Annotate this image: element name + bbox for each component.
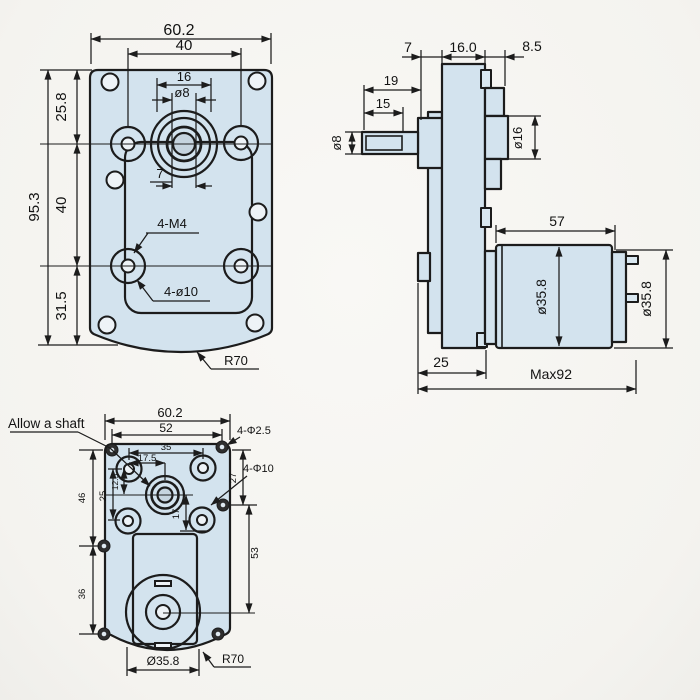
dim-side-motor-length: 57 [549, 213, 565, 229]
dim-side-shaft-length: 19 [384, 73, 398, 88]
dim-side-plate-thickness: 16.0 [449, 39, 476, 55]
back-motor-slot [155, 643, 171, 648]
side-clip-tab [481, 208, 491, 227]
note-allow-a-shaft: Allow a shaft [8, 416, 85, 431]
dim-back-center-down: 17 [171, 509, 182, 520]
dim-back-right-top: 27 [228, 473, 239, 484]
back-motor-slot [155, 581, 171, 586]
front-view: 60.2 40 16 ø8 7 95.3 25.8 40 31.5 4-M4 [26, 22, 272, 369]
front-corner-hole [102, 74, 119, 91]
front-edge-hole [107, 172, 124, 189]
side-motor-terminal [626, 294, 638, 302]
dim-front-key-width: 7 [156, 166, 163, 181]
dim-front-top-offset: 25.8 [53, 92, 70, 121]
dim-back-left-top: 46 [77, 493, 88, 504]
side-lower-boss [418, 253, 430, 281]
side-main-plate [442, 64, 485, 348]
dim-back-corner-radius: R70 [222, 652, 244, 666]
dim-front-boss-width: 16 [177, 69, 191, 84]
dim-front-hole-spacing-v: 40 [53, 197, 70, 214]
callout-back-holes: 4-Φ10 [243, 463, 274, 475]
side-motor-end-cap [612, 252, 626, 342]
dim-front-hole-spacing-h: 40 [176, 37, 193, 54]
front-edge-hole [250, 204, 267, 221]
side-bearing-boss [418, 118, 442, 168]
dim-back-motor-dia: Ø35.8 [147, 654, 180, 668]
front-corner-hole [247, 315, 264, 332]
side-view: 7 16.0 8.5 19 15 ø8 ø16 57 ø35.8 ø [329, 38, 673, 394]
dim-side-boss-dia: ø16 [510, 127, 525, 149]
dim-front-overall-height: 95.3 [26, 192, 43, 221]
side-motor-terminal [626, 256, 638, 264]
dim-side-motor-rear-dia: ø35.8 [638, 281, 654, 317]
drawing-canvas: 60.2 40 16 ø8 7 95.3 25.8 40 31.5 4-M4 [0, 0, 700, 700]
side-boss-step1 [485, 88, 504, 116]
callout-front-thread: 4-M4 [157, 216, 187, 231]
dim-back-hole-spacing-h: 35 [161, 442, 172, 453]
front-corner-hole [99, 317, 116, 334]
back-motor-center-hole [156, 605, 170, 619]
dim-side-shaft-dia: ø8 [329, 135, 344, 150]
side-motor-adapter [485, 251, 496, 344]
dim-front-shaft-dia: ø8 [174, 85, 189, 100]
technical-drawing-gear-motor: 60.2 40 16 ø8 7 95.3 25.8 40 31.5 4-M4 [0, 0, 700, 700]
dim-side-boss-depth: 8.5 [522, 38, 542, 54]
dim-side-shaft-flat-length: 15 [376, 96, 390, 111]
dim-side-cover-thickness: 7 [404, 39, 412, 55]
callout-front-holes: 4-ø10 [164, 284, 198, 299]
back-view: Allow a shaft 60.2 52 35 17.5 12.5 25 [8, 405, 274, 676]
dim-back-shaft-offset-v: 12.5 [110, 473, 120, 490]
callout-back-corner-holes: 4-Φ2.5 [237, 425, 271, 437]
side-motor-body [496, 245, 612, 348]
dim-back-shaft-offset-h: 17.5 [138, 453, 157, 464]
dim-back-left-bottom: 36 [77, 589, 88, 600]
dim-side-base-offset: 25 [433, 354, 449, 370]
side-clip-tab [481, 70, 491, 88]
dim-back-screw-spacing: 52 [159, 421, 173, 435]
dim-front-bottom-offset: 31.5 [53, 291, 70, 320]
front-corner-hole [249, 73, 266, 90]
side-boss-step2 [485, 116, 508, 159]
dim-back-hole-spacing-v: 25 [98, 491, 109, 502]
dim-side-motor-dia: ø35.8 [533, 279, 549, 315]
dim-side-max-length: Max92 [530, 366, 572, 382]
dim-back-overall-width: 60.2 [157, 405, 182, 420]
dim-front-corner-radius: R70 [224, 353, 248, 368]
side-boss-step3 [485, 159, 501, 189]
dim-back-right-mid: 53 [249, 547, 261, 559]
